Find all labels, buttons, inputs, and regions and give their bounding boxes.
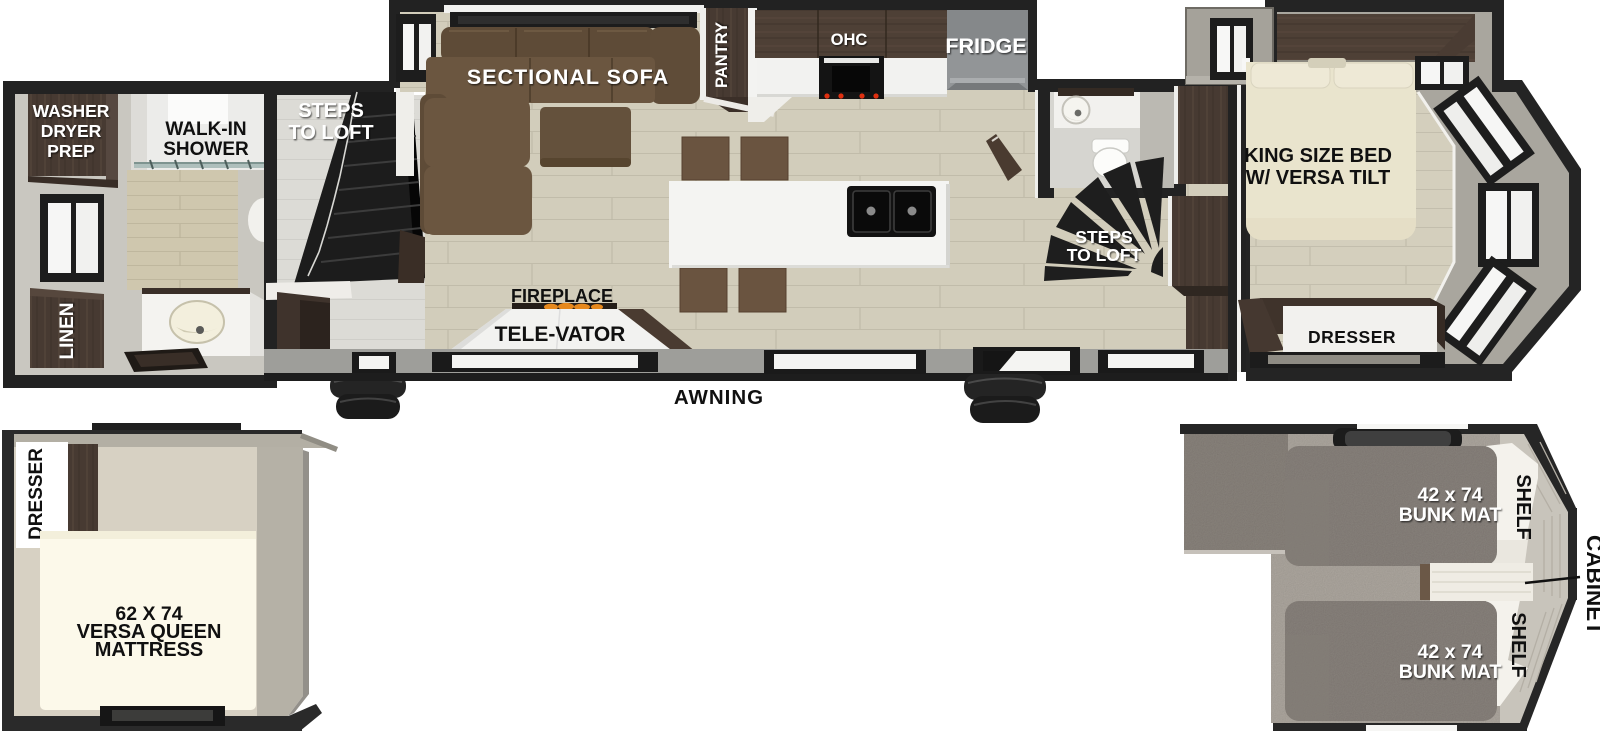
svg-text:STEPS: STEPS xyxy=(1075,227,1132,247)
svg-text:42 x 74: 42 x 74 xyxy=(1417,484,1482,506)
svg-text:DRESSER: DRESSER xyxy=(1308,327,1396,347)
svg-text:CABINET: CABINET xyxy=(1582,535,1600,635)
svg-text:42 x 74: 42 x 74 xyxy=(1417,641,1482,663)
svg-text:WASHER: WASHER xyxy=(33,101,110,121)
svg-text:SHELF: SHELF xyxy=(1507,612,1529,678)
svg-text:AWNING: AWNING xyxy=(674,386,764,409)
svg-text:SHOWER: SHOWER xyxy=(163,139,249,160)
svg-text:DRYER: DRYER xyxy=(41,121,102,141)
svg-text:LINEN: LINEN xyxy=(57,303,78,360)
svg-text:PANTRY: PANTRY xyxy=(713,22,731,88)
svg-text:MATTRESS: MATTRESS xyxy=(95,639,204,661)
svg-text:TO LOFT: TO LOFT xyxy=(288,122,373,144)
svg-text:DRESSER: DRESSER xyxy=(26,448,47,540)
svg-text:PREP: PREP xyxy=(47,141,95,161)
svg-text:BUNK MAT: BUNK MAT xyxy=(1399,504,1502,526)
svg-text:BUNK MAT: BUNK MAT xyxy=(1399,661,1502,683)
svg-text:STEPS: STEPS xyxy=(298,100,364,122)
svg-text:W/ VERSA TILT: W/ VERSA TILT xyxy=(1246,167,1390,189)
svg-text:TELE-VATOR: TELE-VATOR xyxy=(495,323,626,346)
svg-text:FIREPLACE: FIREPLACE xyxy=(511,286,613,306)
svg-text:KING SIZE BED: KING SIZE BED xyxy=(1244,145,1392,167)
svg-text:WALK-IN: WALK-IN xyxy=(165,119,246,140)
svg-text:TO LOFT: TO LOFT xyxy=(1067,245,1142,265)
svg-text:SECTIONAL SOFA: SECTIONAL SOFA xyxy=(467,65,669,89)
svg-text:FRIDGE: FRIDGE xyxy=(945,34,1026,58)
svg-text:OHC: OHC xyxy=(831,31,868,49)
svg-text:SHELF: SHELF xyxy=(1512,474,1534,540)
